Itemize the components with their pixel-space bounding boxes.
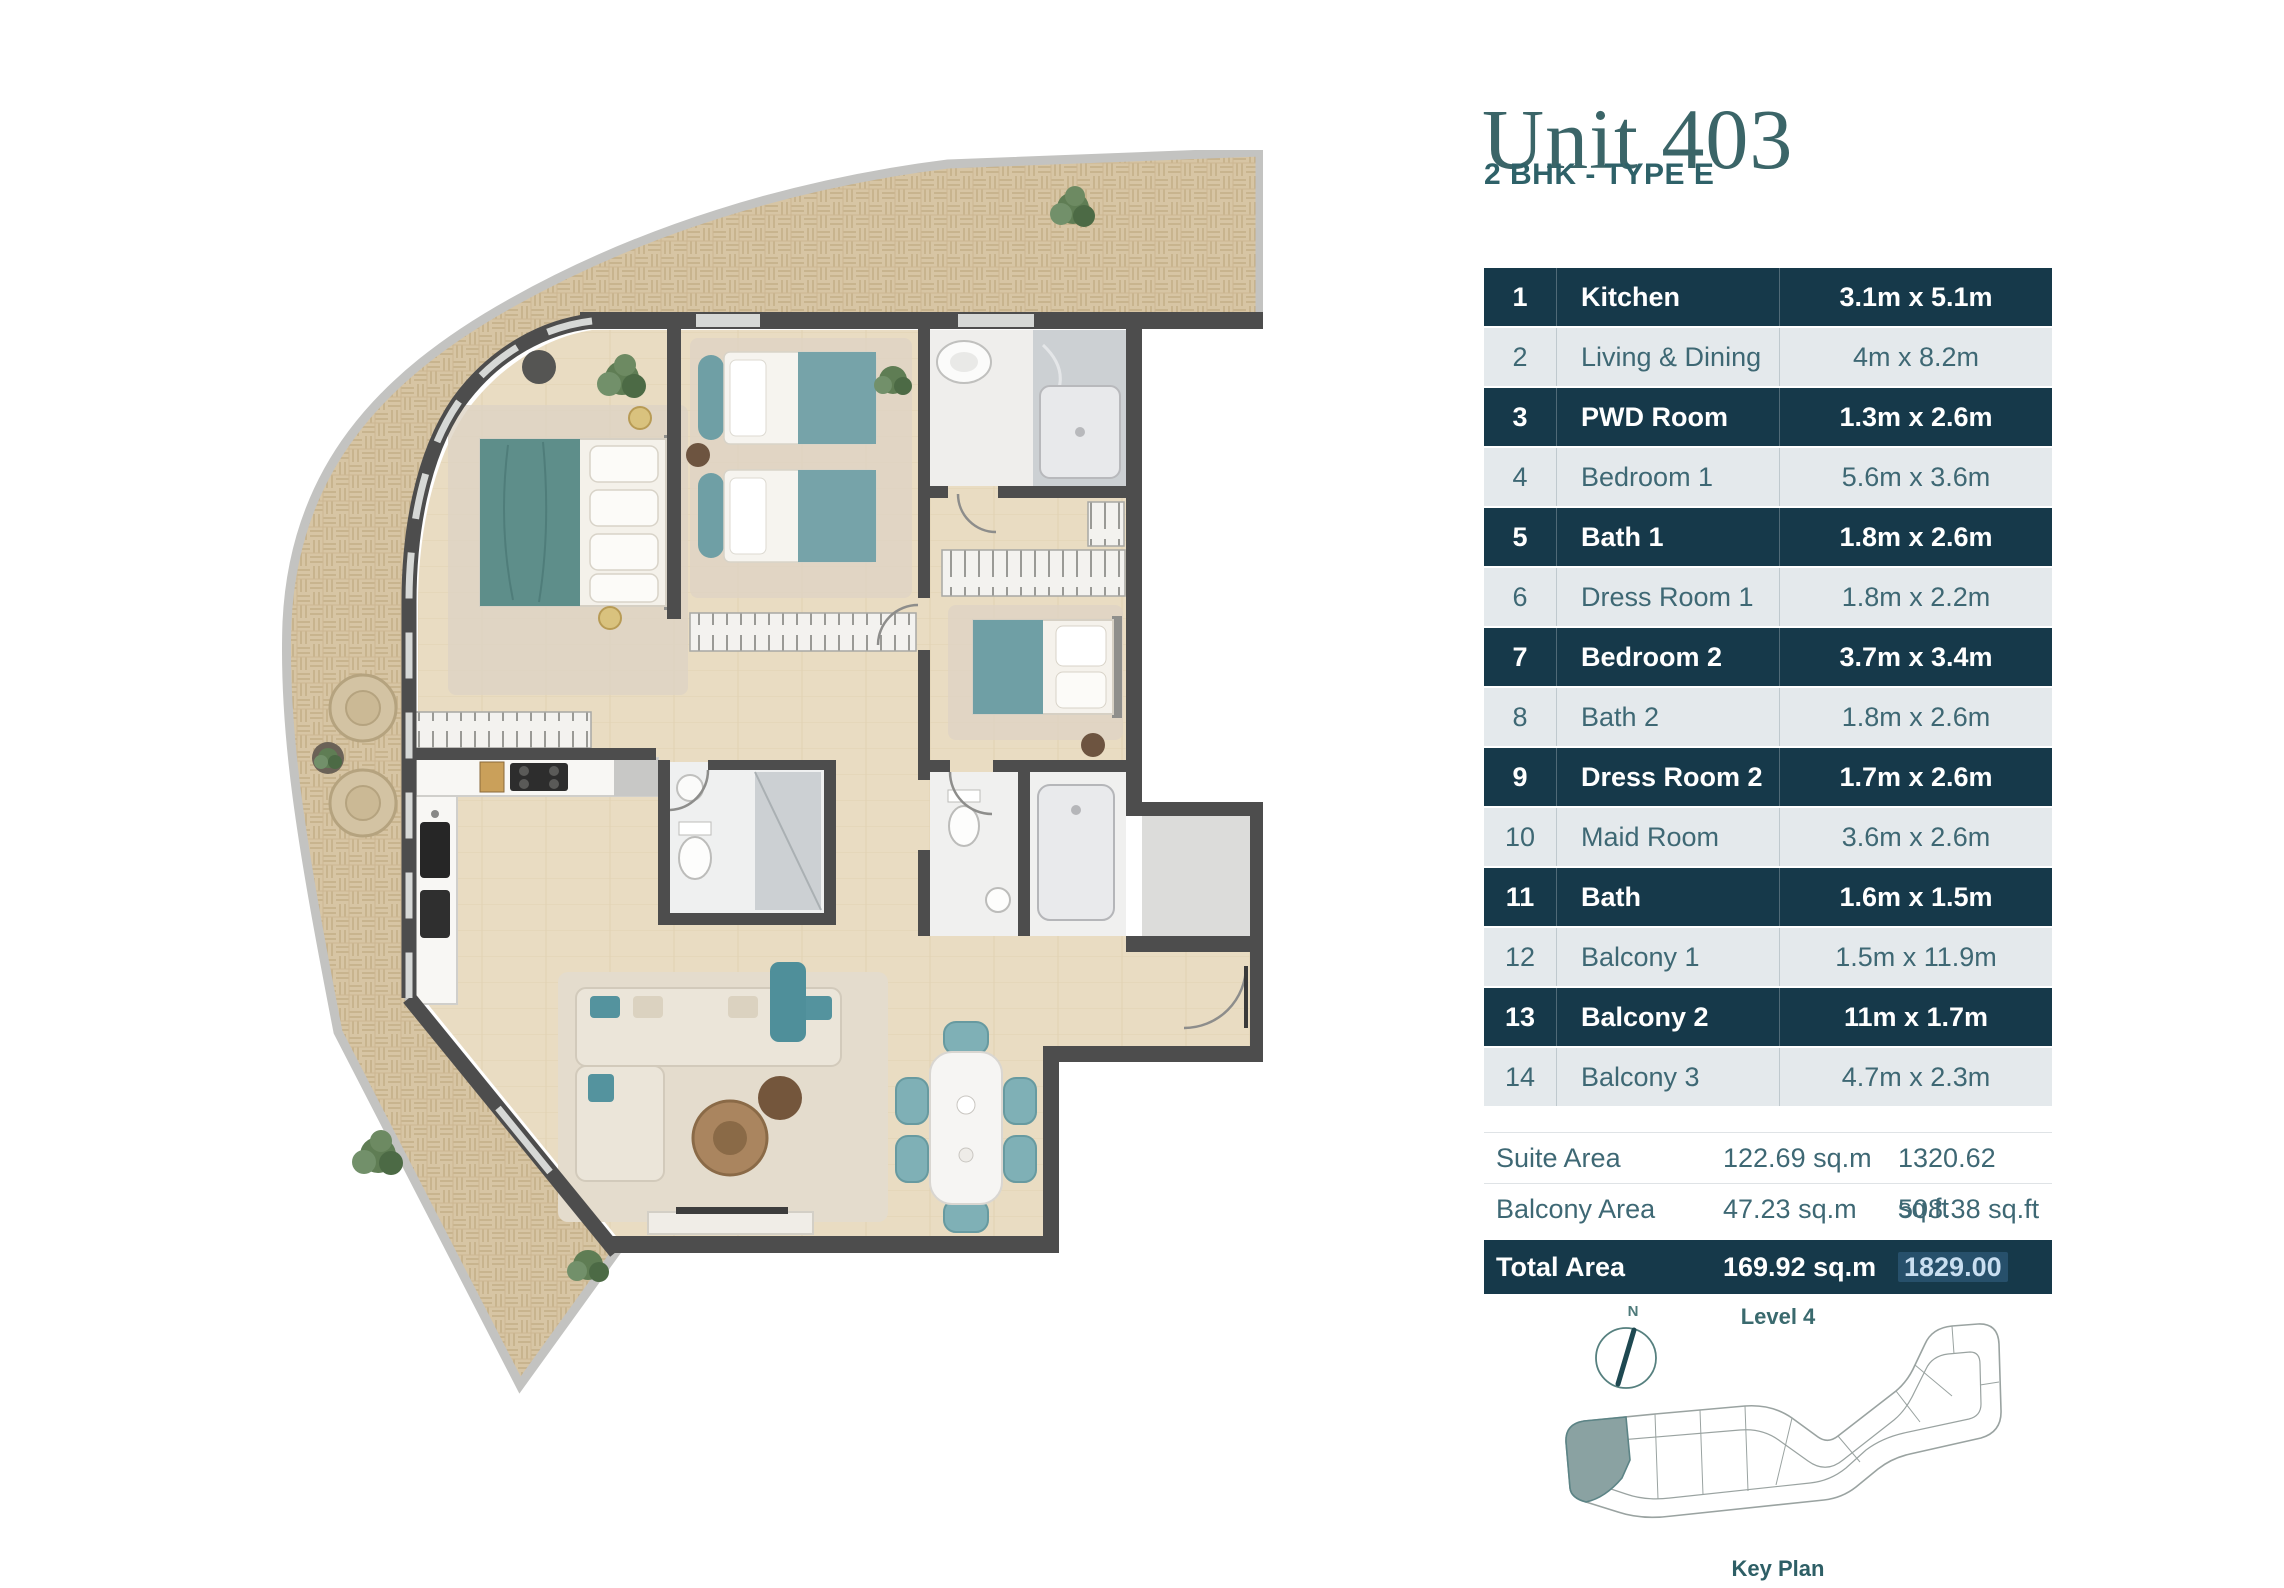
area-sqft: 508.38 sq.ft bbox=[1898, 1184, 2052, 1234]
side-table bbox=[522, 350, 556, 384]
unit-type-subtitle: 2 BHK - TYPE E bbox=[1484, 158, 1714, 192]
room-number: 9 bbox=[1484, 748, 1556, 806]
room-number: 4 bbox=[1484, 448, 1556, 506]
room-name: Bedroom 2 bbox=[1556, 628, 1779, 686]
table-row: 5Bath 11.8m x 2.6m bbox=[1484, 508, 2052, 566]
bed-2 bbox=[973, 616, 1122, 718]
table-row: 9Dress Room 21.7m x 2.6m bbox=[1484, 748, 2052, 806]
table-row: 8Bath 21.8m x 2.6m bbox=[1484, 688, 2052, 746]
area-label: Balcony Area bbox=[1484, 1184, 1723, 1234]
rooms-table: 1Kitchen3.1m x 5.1m 2Living & Dining4m x… bbox=[1484, 268, 2052, 1108]
room-dimensions: 3.7m x 3.4m bbox=[1779, 628, 2052, 686]
room-number: 3 bbox=[1484, 388, 1556, 446]
room-number: 14 bbox=[1484, 1048, 1556, 1106]
room-dimensions: 5.6m x 3.6m bbox=[1779, 448, 2052, 506]
lamp bbox=[599, 607, 621, 629]
area-sqft: 1829.00 sq.ft bbox=[1898, 1240, 2052, 1294]
room-name: Bath 2 bbox=[1556, 688, 1779, 746]
room-name: PWD Room bbox=[1556, 388, 1779, 446]
room-name: Bath bbox=[1556, 868, 1779, 926]
room-dimensions: 1.5m x 11.9m bbox=[1779, 928, 2052, 986]
compass-north-label: N bbox=[1628, 1303, 1639, 1320]
lamp bbox=[629, 407, 651, 429]
table-row: 14Balcony 34.7m x 2.3m bbox=[1484, 1048, 2052, 1106]
room-dimensions: 4m x 8.2m bbox=[1779, 328, 2052, 386]
area-label: Total Area bbox=[1484, 1240, 1723, 1294]
room-number: 12 bbox=[1484, 928, 1556, 986]
room-dimensions: 1.6m x 1.5m bbox=[1779, 868, 2052, 926]
room-name: Kitchen bbox=[1556, 268, 1779, 326]
balcony-area-row: Balcony Area 47.23 sq.m 508.38 sq.ft bbox=[1484, 1183, 2052, 1234]
room-name: Balcony 3 bbox=[1556, 1048, 1779, 1106]
room-dimensions: 3.1m x 5.1m bbox=[1779, 268, 2052, 326]
area-sqft: 1320.62 sq.ft bbox=[1898, 1133, 2052, 1183]
area-sqm: 47.23 sq.m bbox=[1723, 1184, 1898, 1234]
room-number: 2 bbox=[1484, 328, 1556, 386]
pouf bbox=[1081, 733, 1105, 757]
room-dimensions: 1.7m x 2.6m bbox=[1779, 748, 2052, 806]
highlighted-total-sqft: 1829.00 bbox=[1898, 1252, 2008, 1282]
keyplan-caption: Key Plan bbox=[1732, 1556, 1825, 1581]
room-name: Dress Room 1 bbox=[1556, 568, 1779, 626]
floor-plan bbox=[258, 150, 1263, 1420]
bed-master bbox=[480, 435, 676, 610]
room-name: Bedroom 1 bbox=[1556, 448, 1779, 506]
table-row: 3PWD Room1.3m x 2.6m bbox=[1484, 388, 2052, 446]
coffee-table-small bbox=[758, 1076, 802, 1120]
room-dimensions: 1.3m x 2.6m bbox=[1779, 388, 2052, 446]
room-dimensions: 3.6m x 2.6m bbox=[1779, 808, 2052, 866]
service-shaft bbox=[1142, 816, 1250, 936]
room-number: 6 bbox=[1484, 568, 1556, 626]
room-dimensions: 1.8m x 2.2m bbox=[1779, 568, 2052, 626]
table-row: 12Balcony 11.5m x 11.9m bbox=[1484, 928, 2052, 986]
tv-console bbox=[648, 1207, 813, 1234]
page: Unit 403 2 BHK - TYPE E 1Kitchen3.1m x 5… bbox=[0, 0, 2284, 1588]
area-sqm: 169.92 sq.m bbox=[1723, 1240, 1898, 1294]
room-number: 10 bbox=[1484, 808, 1556, 866]
room-dimensions: 4.7m x 2.3m bbox=[1779, 1048, 2052, 1106]
area-label: Suite Area bbox=[1484, 1133, 1723, 1183]
room-dimensions: 1.8m x 2.6m bbox=[1779, 508, 2052, 566]
table-row: 4Bedroom 15.6m x 3.6m bbox=[1484, 448, 2052, 506]
room-name: Dress Room 2 bbox=[1556, 748, 1779, 806]
keyplan-level-label: Level 4 bbox=[1741, 1304, 1816, 1329]
table-row: 1Kitchen3.1m x 5.1m bbox=[1484, 268, 2052, 326]
room-name: Balcony 1 bbox=[1556, 928, 1779, 986]
room-dimensions: 1.8m x 2.6m bbox=[1779, 688, 2052, 746]
room-number: 11 bbox=[1484, 868, 1556, 926]
room-number: 7 bbox=[1484, 628, 1556, 686]
coffee-table-inner bbox=[713, 1121, 747, 1155]
room-number: 1 bbox=[1484, 268, 1556, 326]
suite-area-row: Suite Area 122.69 sq.m 1320.62 sq.ft bbox=[1484, 1132, 2052, 1183]
compass-icon: N bbox=[1596, 1303, 1656, 1388]
key-plan: N Level 4 Key Plan bbox=[1560, 1292, 2030, 1588]
total-area-row: Total Area 169.92 sq.m 1829.00 sq.ft bbox=[1484, 1240, 2052, 1294]
area-sqm: 122.69 sq.m bbox=[1723, 1133, 1898, 1183]
room-number: 5 bbox=[1484, 508, 1556, 566]
room-dimensions: 11m x 1.7m bbox=[1779, 988, 2052, 1046]
table-row: 6Dress Room 11.8m x 2.2m bbox=[1484, 568, 2052, 626]
room-number: 13 bbox=[1484, 988, 1556, 1046]
lounge-chair bbox=[770, 962, 806, 1042]
room-number: 8 bbox=[1484, 688, 1556, 746]
table-row: 11Bath1.6m x 1.5m bbox=[1484, 868, 2052, 926]
building-outline bbox=[1566, 1324, 2001, 1517]
table-row: 7Bedroom 23.7m x 3.4m bbox=[1484, 628, 2052, 686]
area-summary: Suite Area 122.69 sq.m 1320.62 sq.ft Bal… bbox=[1484, 1132, 2052, 1294]
table-row: 13Balcony 211m x 1.7m bbox=[1484, 988, 2052, 1046]
room-name: Balcony 2 bbox=[1556, 988, 1779, 1046]
pouf bbox=[686, 443, 710, 467]
table-row: 2Living & Dining4m x 8.2m bbox=[1484, 328, 2052, 386]
table-row: 10Maid Room3.6m x 2.6m bbox=[1484, 808, 2052, 866]
room-name: Maid Room bbox=[1556, 808, 1779, 866]
room-name: Bath 1 bbox=[1556, 508, 1779, 566]
room-name: Living & Dining bbox=[1556, 328, 1779, 386]
